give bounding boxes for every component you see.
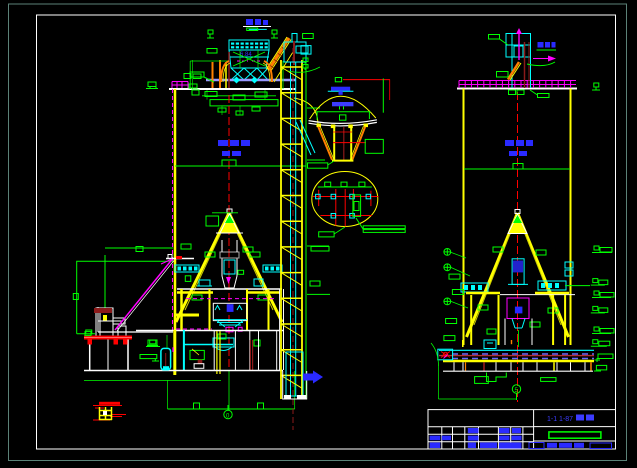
svg-text:6.84: 6.84	[240, 52, 252, 58]
svg-text:1-1 1-87: 1-1 1-87	[547, 416, 573, 423]
